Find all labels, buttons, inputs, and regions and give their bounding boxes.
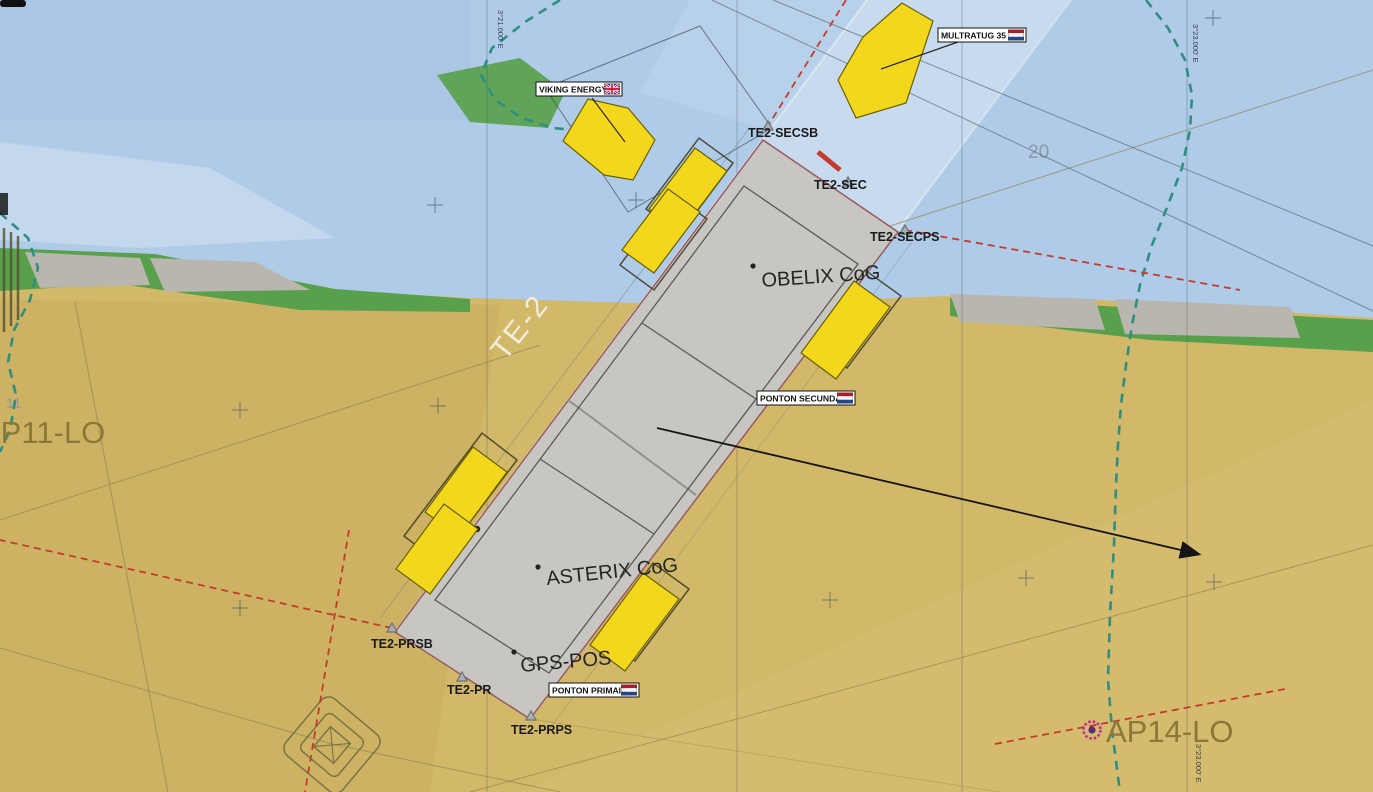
vessel-label-ponton-primair[interactable]: PONTON PRIMAIR <box>549 683 639 697</box>
screen-edge-artifact <box>0 193 8 215</box>
anchor-label-ap11: AP11-LO <box>0 415 105 450</box>
meridian-label-right: 3°23.000' E <box>1191 24 1200 63</box>
nl-flag-icon <box>837 393 853 404</box>
vessel-label-viking[interactable]: VIKING ENERGY <box>536 82 622 96</box>
uk-flag-icon <box>604 84 620 95</box>
anchor-label-ap14: AP14-LO <box>1106 714 1234 749</box>
vessel-label-text: PONTON PRIMAIR <box>552 686 628 696</box>
meridian-label-right-bottom: 3°23.000' E <box>1194 744 1203 783</box>
water-deep-patch <box>0 0 470 120</box>
vessel-label-multratug[interactable]: MULTRATUG 35 <box>938 28 1026 42</box>
depth-sounding: 20 <box>1028 142 1049 163</box>
ecdis-chart-display: 20 11 <box>0 0 1373 792</box>
waypoint-label-prps: TE2-PRPS <box>511 723 572 737</box>
screen-corner-artifact <box>0 0 26 7</box>
meridian-label-left: 3°21.000' E <box>496 10 505 49</box>
nl-flag-icon <box>1008 30 1024 41</box>
nautical-chart-canvas[interactable]: 20 11 <box>0 0 1373 792</box>
vessel-label-ponton-secundair[interactable]: PONTON SECUNDAIR <box>757 391 855 405</box>
vessel-label-text: MULTRATUG 35 <box>941 31 1006 41</box>
waypoint-label-secsb: TE2-SECSB <box>748 126 818 140</box>
waypoint-label-prsb: TE2-PRSB <box>371 637 433 651</box>
waypoint-label-secps: TE2-SECPS <box>870 230 939 244</box>
waypoint-label-sec: TE2-SEC <box>814 178 867 192</box>
nl-flag-icon <box>621 685 637 696</box>
waypoint-label-pr: TE2-PR <box>447 683 491 697</box>
vessel-label-text: VIKING ENERGY <box>539 85 608 95</box>
